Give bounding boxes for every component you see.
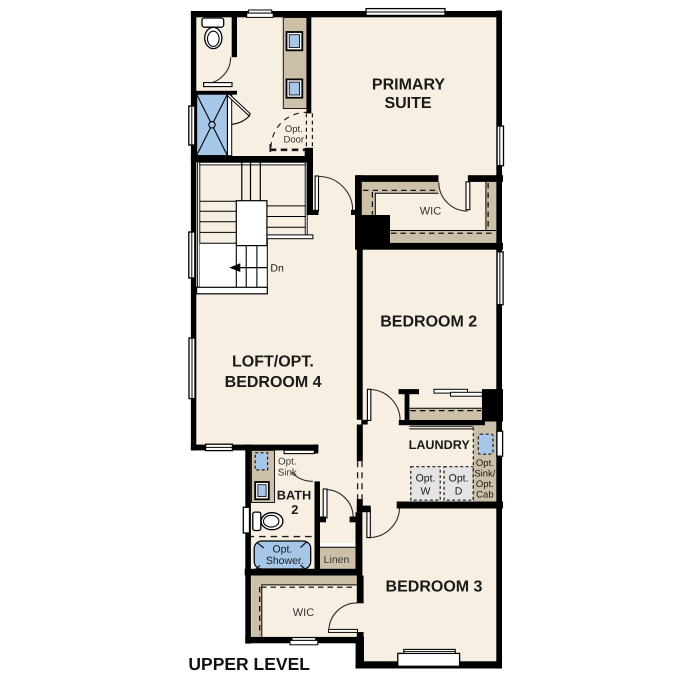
svg-text:UPPER LEVEL: UPPER LEVEL [188,654,310,674]
svg-text:W: W [421,486,431,498]
svg-text:Opt.: Opt. [416,473,436,485]
svg-text:WIC: WIC [420,206,441,218]
svg-text:Cab: Cab [476,490,493,501]
svg-text:BEDROOM 2: BEDROOM 2 [380,313,477,330]
svg-text:Sink: Sink [278,467,297,478]
svg-text:Opt.: Opt. [449,473,469,485]
svg-text:Opt.: Opt. [278,457,297,468]
svg-text:WIC: WIC [293,607,314,619]
svg-text:PRIMARY: PRIMARY [372,77,446,94]
svg-text:BEDROOM 3: BEDROOM 3 [386,578,483,595]
svg-text:Sink/: Sink/ [474,469,495,480]
svg-text:Dn: Dn [270,263,284,275]
svg-text:BATH: BATH [277,487,312,502]
svg-text:Opt.: Opt. [272,543,292,555]
svg-text:Door: Door [284,135,305,146]
svg-text:2: 2 [291,502,298,517]
svg-text:Shower.: Shower. [266,555,304,567]
svg-text:Opt.: Opt. [285,124,303,135]
svg-text:LAUNDRY: LAUNDRY [409,438,471,452]
svg-text:Linen: Linen [324,554,350,566]
svg-text:Opt.: Opt. [476,479,494,490]
svg-text:BEDROOM 4: BEDROOM 4 [225,374,322,391]
svg-text:SUITE: SUITE [384,95,431,112]
svg-text:Opt.: Opt. [476,458,494,469]
svg-text:D: D [455,486,463,498]
svg-text:LOFT/OPT.: LOFT/OPT. [232,354,314,371]
